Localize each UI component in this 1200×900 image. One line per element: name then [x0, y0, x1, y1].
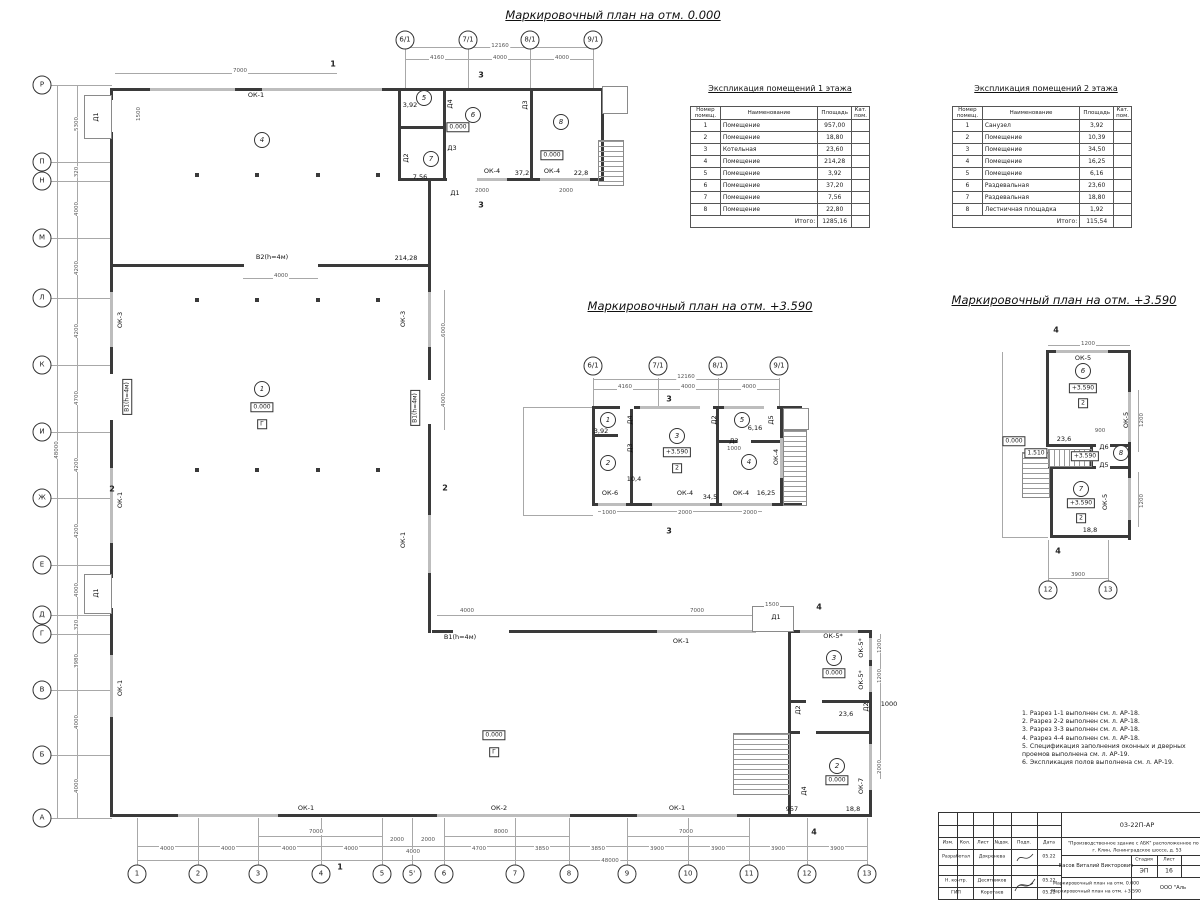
level-mark: Г: [489, 747, 499, 757]
grid-bubble: 6/1: [396, 31, 415, 50]
object-name-line2: г. Клин, Ленинградское шоссе, д. 53: [1092, 849, 1181, 854]
dimension: 1000: [601, 510, 617, 516]
plan-label: Д1: [450, 189, 459, 197]
dimension: 4000: [273, 273, 289, 279]
grid-bubble: М: [33, 229, 52, 248]
plan-label: Д5: [1099, 461, 1108, 469]
plan-label: Д2: [710, 415, 718, 424]
grid-bubble: 13: [858, 865, 877, 884]
table-row: 2Помещение18,80: [691, 132, 870, 144]
level-mark: +3.590: [1069, 383, 1097, 393]
level-mark: 0.000: [482, 730, 505, 740]
grid-bubble: 8/1: [709, 357, 728, 376]
plan-label: ОК-3: [399, 311, 407, 327]
section-mark: 3: [478, 201, 484, 210]
col-header: Площадь: [1080, 107, 1114, 120]
col-header: Номер помещ.: [953, 107, 983, 120]
level-mark: 0.000: [1002, 436, 1025, 446]
grid-bubble: В: [33, 681, 52, 700]
plan-label: ОК-1: [116, 680, 124, 696]
section-mark: 1: [337, 863, 343, 872]
dimension: 7000: [689, 608, 705, 614]
plan-label: Д4: [800, 786, 808, 795]
col-kol: Кол.: [960, 841, 970, 846]
room-bubble: 7: [1073, 481, 1089, 497]
plan-label: 18,8: [846, 805, 860, 813]
col-data: Дата: [1043, 841, 1055, 846]
note-item: 3. Разрез 3-3 выполнен см. л. АР-18.: [1022, 726, 1198, 734]
plan-label: ОК-4: [677, 489, 693, 497]
table-row: 7Раздевальная18,80: [953, 192, 1132, 204]
dimension: 4000: [405, 849, 421, 855]
dimension: 3900: [829, 846, 845, 852]
drawing-sheet: { "colors": {"wall": "#3a3a3a", "thin_li…: [0, 0, 1200, 900]
plan-label: 16,25: [757, 489, 776, 497]
plan-label: 3,92: [594, 427, 608, 435]
room-bubble: 4: [254, 132, 270, 148]
grid-bubble: 8: [560, 865, 579, 884]
grid-bubble: Г: [33, 625, 52, 644]
dimension: 320: [74, 620, 80, 631]
grid-bubble: П: [33, 153, 52, 172]
grid-bubble: 12: [798, 865, 817, 884]
plan-label: ОК-4: [484, 167, 500, 175]
table-row: 2Помещение10,39: [953, 132, 1132, 144]
stage-label: Стадия: [1135, 858, 1153, 863]
table-total-row: Итого:115,54: [953, 216, 1132, 228]
plan-label: ОК-4: [544, 167, 560, 175]
table-row: 8Лестничная площадка1,92: [953, 204, 1132, 216]
col-header: Кат. пом.: [1114, 107, 1132, 120]
grid-bubble: 10: [679, 865, 698, 884]
grid-bubble: Д: [33, 606, 52, 625]
grid-bubble: 7: [506, 865, 525, 884]
plan-label: ОК-2: [491, 804, 507, 812]
org-name: ООО "Аль: [1160, 885, 1186, 891]
plan-label: 957: [786, 805, 798, 813]
dimension: 1200: [1139, 413, 1145, 427]
room-bubble: 2: [829, 758, 845, 774]
dimension: 2000: [877, 760, 883, 774]
dimension: 4000: [441, 393, 447, 407]
plan-label: Д3: [626, 443, 634, 452]
plan-label: 10,4: [627, 475, 641, 483]
role-gip: ГИП: [951, 891, 961, 896]
note-item: 2. Разрез 2-2 выполнен см. л. АР-18.: [1022, 718, 1198, 726]
dimension: 3900: [710, 846, 726, 852]
plan-label: Д3: [729, 437, 738, 445]
section-mark: 2: [109, 485, 115, 494]
dimension: 48000: [54, 441, 60, 459]
dimension: 1000: [726, 446, 742, 452]
title-block: 03-22П-АР "Производственное здание с АБК…: [938, 812, 1200, 900]
explication-table-floor1: Номер помещ. Наименование Площадь Кат. п…: [690, 106, 870, 228]
dimension: 3900: [770, 846, 786, 852]
dimension: 4000: [159, 846, 175, 852]
grid-bubble: И: [33, 423, 52, 442]
level-mark: 0.000: [250, 402, 273, 412]
gate-mark: В1(h=4м): [410, 390, 420, 426]
section-mark: 4: [1053, 326, 1059, 335]
dimension: 1200: [1139, 494, 1145, 508]
dimension: 4000: [343, 846, 359, 852]
dimension: 4000: [492, 55, 508, 61]
plan-label: ОК-3: [116, 312, 124, 328]
room-bubble: 2: [600, 455, 616, 471]
plan-label: ОК-1: [669, 804, 685, 812]
dimension: 4000: [554, 55, 570, 61]
room-bubble: 6: [1075, 363, 1091, 379]
table1-title: Экспликация помещений 1 этажа: [708, 84, 852, 93]
grid-bubble: 7/1: [459, 31, 478, 50]
grid-bubble: 12: [1039, 581, 1058, 600]
col-izm: Изм.: [943, 841, 954, 846]
dimension: 3850: [534, 846, 550, 852]
grid-bubble: К: [33, 356, 52, 375]
gate-mark: В1(h=4м): [122, 379, 132, 415]
plan-label: Д1: [92, 588, 100, 597]
plan-label: 23,6: [1057, 435, 1071, 443]
room-bubble: 8: [553, 114, 569, 130]
level-mark: 0.000: [540, 150, 563, 160]
signature-icon: [1013, 873, 1037, 897]
plan-label: Д4: [626, 415, 634, 424]
col-header: Номер помещ.: [691, 107, 721, 120]
dimension: 8000: [493, 829, 509, 835]
sheet-label: Лист: [1163, 858, 1175, 863]
grid-bubble: 7/1: [649, 357, 668, 376]
plan-label: Д5: [767, 415, 775, 424]
table-row: 7Помещение7,56: [691, 192, 870, 204]
level-mark: +3.590: [1071, 451, 1099, 461]
dimension: 4700: [74, 391, 80, 405]
dimension: 900: [1094, 428, 1107, 434]
table-row: 6Помещение37,20: [691, 180, 870, 192]
grid-bubble: 3: [249, 865, 268, 884]
plan-label: ОК-7: [857, 778, 865, 794]
grid-bubble: Е: [33, 556, 52, 575]
table-row: 1Санузел3,92: [953, 120, 1132, 132]
plan-label: ОК-5*: [857, 638, 865, 657]
plan-label: Д6: [1099, 443, 1108, 451]
section-mark: 4: [811, 828, 817, 837]
dimension: 4000: [74, 715, 80, 729]
chief-name: Басов Виталий Викторович: [1059, 863, 1134, 869]
dimension: 4700: [471, 846, 487, 852]
grid-bubble: Р: [33, 76, 52, 95]
staircase: [1022, 452, 1050, 498]
dimension: 12160: [490, 43, 510, 49]
plan-label: 23,6: [839, 710, 853, 718]
note-item: 4. Разрез 4-4 выполнен см. л. АР-18.: [1022, 735, 1198, 743]
grid-bubble: Б: [33, 746, 52, 765]
name-developer: Докренева: [979, 855, 1005, 860]
room-bubble: 8: [1113, 445, 1129, 461]
dimension: 6000: [441, 323, 447, 337]
dimension: 1500: [136, 107, 142, 121]
plan-label: ОК-1: [248, 91, 264, 99]
plan-label: ОК-5*: [823, 632, 842, 640]
sheet-code: 03-22П-АР: [1120, 821, 1155, 829]
grid-bubble: Л: [33, 289, 52, 308]
room-bubble: 5: [734, 412, 750, 428]
plan-label: ОК-5: [1075, 354, 1091, 362]
mid-plan-title: Маркировочный план на отм. +3.590: [588, 299, 813, 313]
section-mark: 4: [1055, 547, 1061, 556]
plan-label: Д4: [446, 99, 454, 108]
table-row: 5Помещение6,16: [953, 168, 1132, 180]
right-plan-title: Маркировочный план на отм. +3.590: [952, 293, 1177, 307]
table2-title: Экспликация помещений 2 этажа: [974, 84, 1118, 93]
stage-value: ЭП: [1140, 868, 1149, 875]
dimension: 4200: [74, 324, 80, 338]
plan-label: ОК-1: [399, 532, 407, 548]
level-mark: +3.590: [1067, 498, 1095, 508]
note-item: 1. Разрез 1-1 выполнен см. л. АР-18.: [1022, 710, 1198, 718]
section-mark: 3: [666, 527, 672, 536]
name-ncontrol: Десятников: [978, 879, 1007, 884]
col-header: Кат. пом.: [852, 107, 870, 120]
plan-label: 6,16: [748, 424, 762, 432]
dimension: 4000: [74, 202, 80, 216]
plan-label: В1(h=4м): [444, 633, 476, 641]
table-row: 5Помещение3,92: [691, 168, 870, 180]
plan-label: ОК-1: [673, 637, 689, 645]
section-mark: 2: [442, 484, 448, 493]
plan-label: Д2: [862, 702, 870, 711]
plan-label: 3,92: [403, 101, 417, 109]
grid-bubble: 9/1: [584, 31, 603, 50]
date-developer: 05.22: [1042, 855, 1055, 860]
dimension: 12160: [676, 374, 696, 380]
dimension: 2000: [677, 510, 693, 516]
grid-bubble: 11: [740, 865, 759, 884]
dimension: 7000: [678, 829, 694, 835]
staircase: [783, 430, 807, 506]
dimension: 7000: [232, 68, 248, 74]
col-header: Наименование: [982, 107, 1079, 120]
dimension: 320: [74, 167, 80, 178]
grid-bubble: 8/1: [521, 31, 540, 50]
plan-label: ОК-1: [116, 492, 124, 508]
staircase: [598, 140, 624, 186]
grid-bubble: 6/1: [584, 357, 603, 376]
grid-bubble: Н: [33, 172, 52, 191]
dimension: 2000: [742, 510, 758, 516]
grid-bubble: 2: [189, 865, 208, 884]
main-plan-title: Маркировочный план на отм. 0.000: [505, 8, 720, 22]
dimension: 4000: [220, 846, 236, 852]
plan-label: 18,8: [1083, 526, 1097, 534]
dimension: 1200: [877, 669, 883, 683]
section-mark: 1: [330, 60, 336, 69]
room-bubble: 5: [416, 90, 432, 106]
plan-label: 1000: [881, 700, 898, 708]
plan-label: Д2: [402, 153, 410, 162]
dimension: 1500: [764, 602, 780, 608]
room-bubble: 4: [741, 454, 757, 470]
grid-bubble: 4: [312, 865, 331, 884]
dimension: 3980: [74, 654, 80, 668]
dimension: 2000: [420, 837, 436, 843]
grid-bubble: 6: [435, 865, 454, 884]
table-row: 6Раздевальная23,60: [953, 180, 1132, 192]
dimension: 4160: [617, 384, 633, 390]
table-row: 3Котельная23,60: [691, 144, 870, 156]
level-mark: 2: [1076, 513, 1086, 523]
section-mark: 4: [816, 603, 822, 612]
doc-title-line1: Маркировочный план на отм. 0.000: [1053, 882, 1139, 887]
plan-label: Д1: [771, 613, 780, 621]
table-row: 4Помещение214,28: [691, 156, 870, 168]
dimension: 3900: [649, 846, 665, 852]
room-bubble: 1: [254, 381, 270, 397]
level-mark: Г: [257, 419, 267, 429]
dimension: 4000: [741, 384, 757, 390]
signature-icon: [1015, 851, 1035, 864]
dimension: 5300: [74, 117, 80, 131]
plan-label: ОК-6: [602, 489, 618, 497]
table-row: 8Помещение22,80: [691, 204, 870, 216]
dimension: 3900: [1070, 572, 1086, 578]
col-header: Наименование: [720, 107, 817, 120]
note-item: 5. Спецификация заполнения оконных и две…: [1022, 743, 1198, 759]
sheet-value: 16: [1165, 868, 1173, 875]
grid-bubble: 9/1: [770, 357, 789, 376]
dimension: 4000: [281, 846, 297, 852]
room-bubble: 6: [465, 107, 481, 123]
dimension: 3850: [590, 846, 606, 852]
grid-bubble: 9: [618, 865, 637, 884]
role-ncontrol: Н. контр.: [945, 879, 967, 884]
col-ndok: №док.: [995, 841, 1010, 846]
dimension: 2000: [474, 188, 490, 194]
dimension: 4200: [74, 524, 80, 538]
plan-label: В2(h=4м): [256, 253, 288, 261]
dimension: 4000: [74, 583, 80, 597]
dimension: 4000: [680, 384, 696, 390]
dimension: 1200: [1080, 341, 1096, 347]
grid-bubble: 13: [1099, 581, 1118, 600]
plan-label: 214,28: [395, 254, 418, 262]
level-mark: 1.510: [1024, 448, 1047, 458]
room-bubble: 7: [423, 151, 439, 167]
notes-list: 1. Разрез 1-1 выполнен см. л. АР-18.2. Р…: [1022, 710, 1198, 767]
dimension: 7000: [308, 829, 324, 835]
dimension: 1200: [877, 639, 883, 653]
note-item: 6. Экспликация полов выполнена см. л. АР…: [1022, 759, 1198, 767]
explication-table-floor2: Номер помещ. Наименование Площадь Кат. п…: [952, 106, 1132, 228]
staircase: [733, 733, 790, 795]
plan-label: Д2: [794, 705, 802, 714]
room-bubble: 1: [600, 412, 616, 428]
name-gip: Коротаев: [981, 891, 1004, 896]
room-bubble: 3: [669, 428, 685, 444]
role-developer: Разработал: [942, 855, 970, 860]
col-header: Площадь: [818, 107, 852, 120]
grid-bubble: А: [33, 809, 52, 828]
plan-label: 7,56: [413, 173, 427, 181]
plan-label: Д3: [521, 100, 529, 109]
level-mark: +3.590: [663, 447, 691, 457]
dimension: 4160: [429, 55, 445, 61]
table-row: 1Помещение957,00: [691, 120, 870, 132]
dimension: 2000: [389, 837, 405, 843]
col-podp: Подп.: [1017, 841, 1031, 846]
plan-label: Д3: [447, 144, 456, 152]
table-total-row: Итого:1285,16: [691, 216, 870, 228]
landing: [783, 408, 809, 430]
entry-porch: [602, 86, 628, 114]
doc-title-line2: Маркировочный план на отм. +3.590: [1051, 890, 1141, 895]
grid-bubble: Ж: [33, 489, 52, 508]
dimension: 4200: [74, 458, 80, 472]
level-mark: 0.000: [446, 122, 469, 132]
grid-bubble: 1: [128, 865, 147, 884]
dimension: 2000: [558, 188, 574, 194]
level-mark: 2: [672, 463, 682, 473]
table-row: 3Помещение34,50: [953, 144, 1132, 156]
dimension: 4000: [74, 779, 80, 793]
room-bubble: 3: [826, 650, 842, 666]
dimension: 4000: [459, 608, 475, 614]
dimension: 48000: [600, 858, 620, 864]
plan-label: ОК-1: [298, 804, 314, 812]
plan-label: 37,2: [515, 169, 529, 177]
section-mark: 3: [478, 71, 484, 80]
dimension: 4200: [74, 261, 80, 275]
plan-label: ОК-5: [1101, 494, 1109, 510]
plan-label: 22,8: [574, 169, 588, 177]
object-name-line1: "Производственное здание с АБК" располож…: [1068, 842, 1200, 847]
plan-label: ОК-4: [733, 489, 749, 497]
level-mark: 0.000: [825, 775, 848, 785]
plan-label: 34,5: [703, 493, 717, 501]
grid-bubble: 5': [403, 865, 422, 884]
level-mark: 0.000: [822, 668, 845, 678]
table-row: 4Помещение16,25: [953, 156, 1132, 168]
level-mark: 2: [1078, 398, 1088, 408]
plan-label: ОК-4: [772, 449, 780, 465]
plan-label: ОК-5: [1122, 412, 1130, 428]
plan-label: Д1: [92, 112, 100, 121]
plan-label: ОК-5*: [857, 670, 865, 689]
grid-bubble: 5: [373, 865, 392, 884]
section-mark: 3: [666, 395, 672, 404]
col-list: Лист: [977, 841, 989, 846]
